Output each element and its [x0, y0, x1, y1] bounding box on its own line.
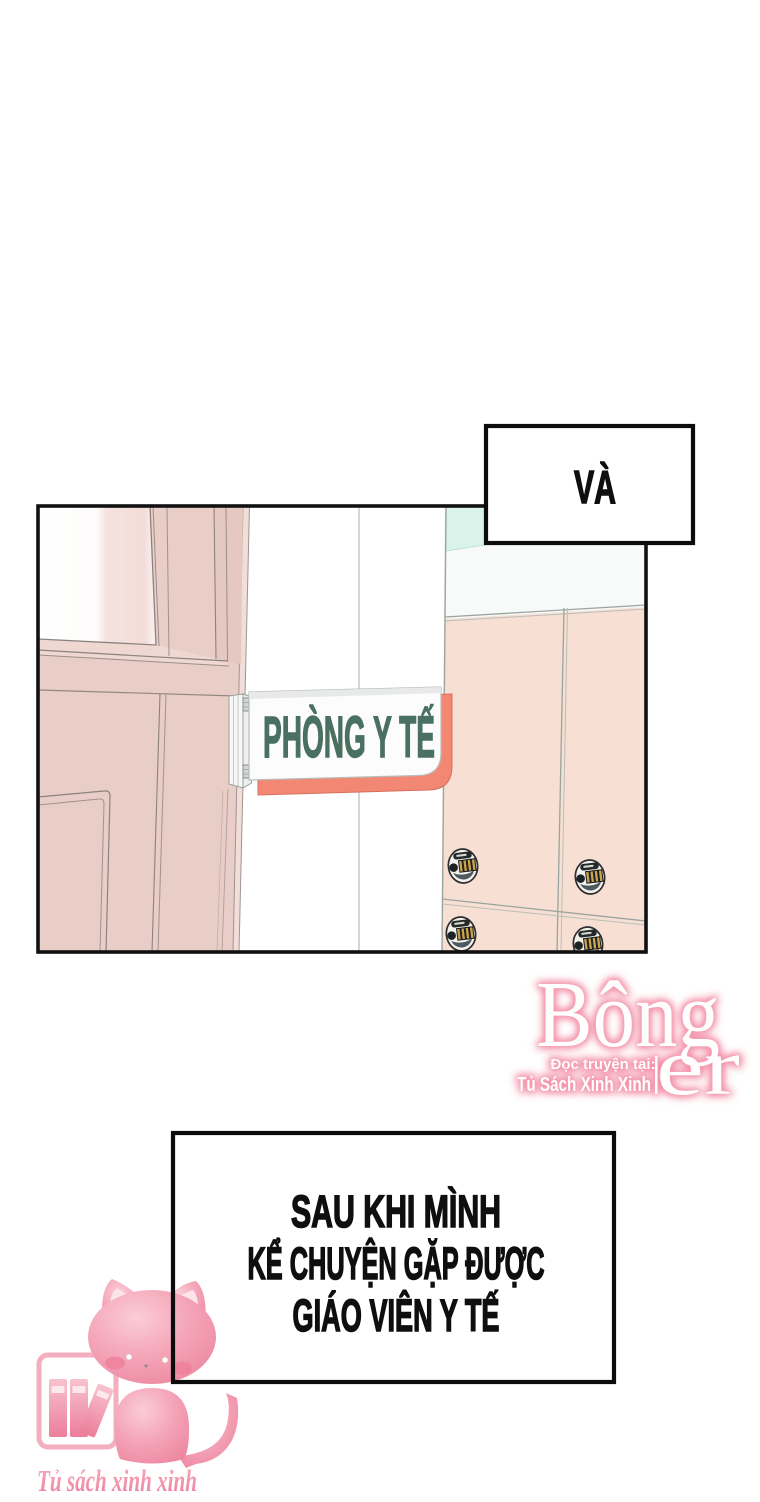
svg-text:GIÁO VIÊN Y TẾ: GIÁO VIÊN Y TẾ	[293, 1290, 500, 1341]
svg-text:SAU KHI MÌNH: SAU KHI MÌNH	[291, 1186, 501, 1237]
svg-text:PHÒNG Y TẾ: PHÒNG Y TẾ	[263, 705, 435, 770]
svg-text:VÀ: VÀ	[574, 461, 616, 513]
svg-text:Tủ sách xinh xinh: Tủ sách xinh xinh	[37, 1463, 197, 1498]
svg-text:KỂ CHUYỆN GẶP ĐƯỢC: KỂ CHUYỆN GẶP ĐƯỢC	[248, 1238, 545, 1289]
